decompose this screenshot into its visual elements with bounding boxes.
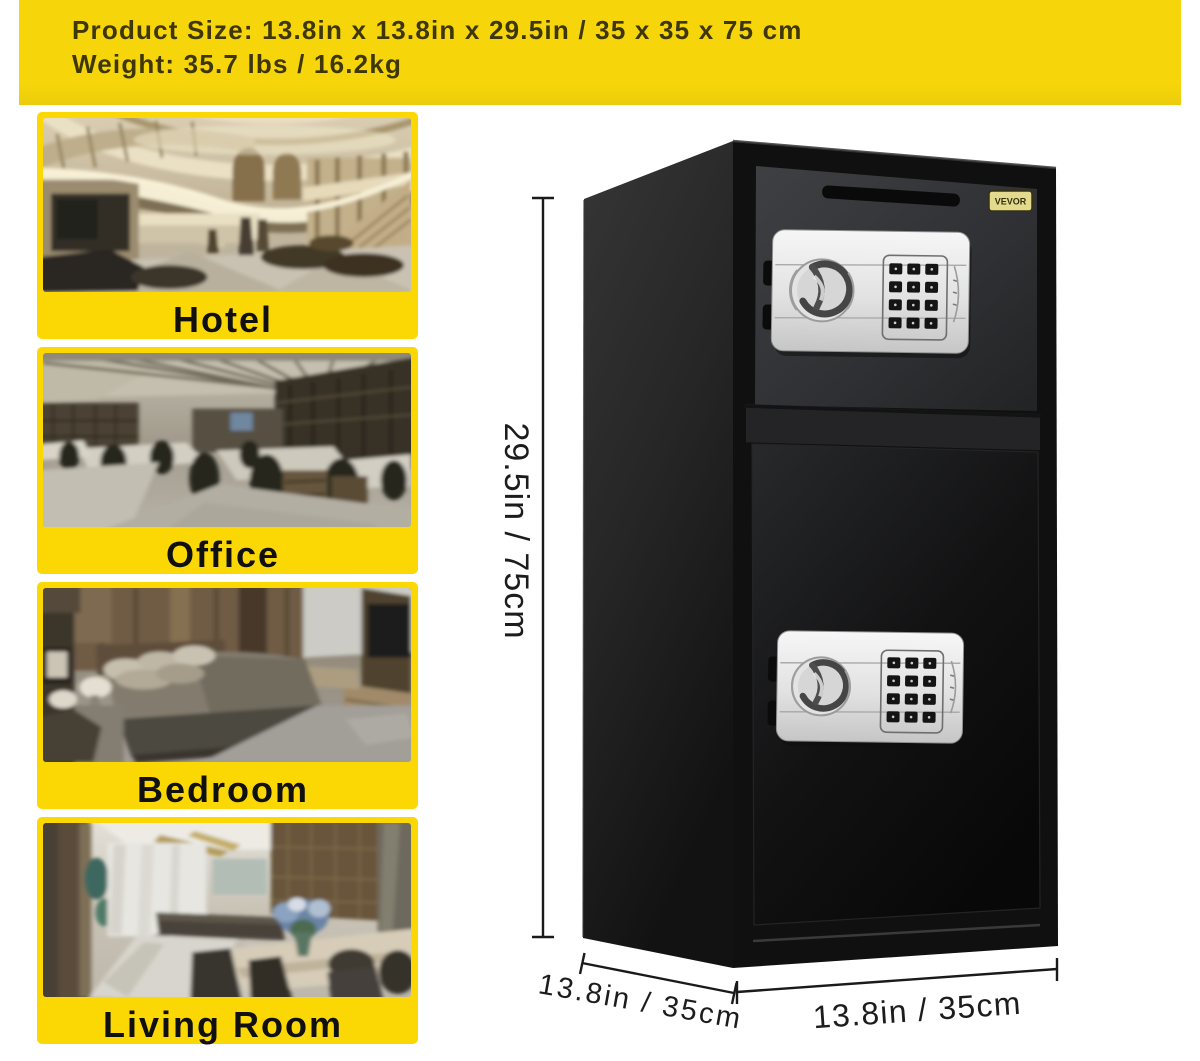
svg-text:29.5in / 75cm: 29.5in / 75cm	[497, 422, 535, 639]
svg-text:13.8in / 35cm: 13.8in / 35cm	[536, 968, 745, 1035]
svg-text:VEVOR: VEVOR	[995, 197, 1027, 207]
svg-text:13.8in / 35cm: 13.8in / 35cm	[812, 985, 1023, 1035]
